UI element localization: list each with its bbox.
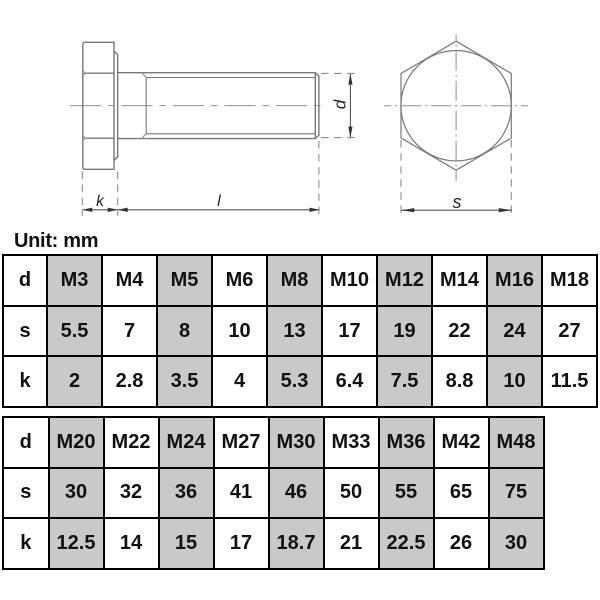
svg-text:d: d [330,99,349,109]
svg-text:l: l [217,193,221,210]
svg-text:s: s [453,192,462,212]
svg-text:k: k [96,193,105,210]
